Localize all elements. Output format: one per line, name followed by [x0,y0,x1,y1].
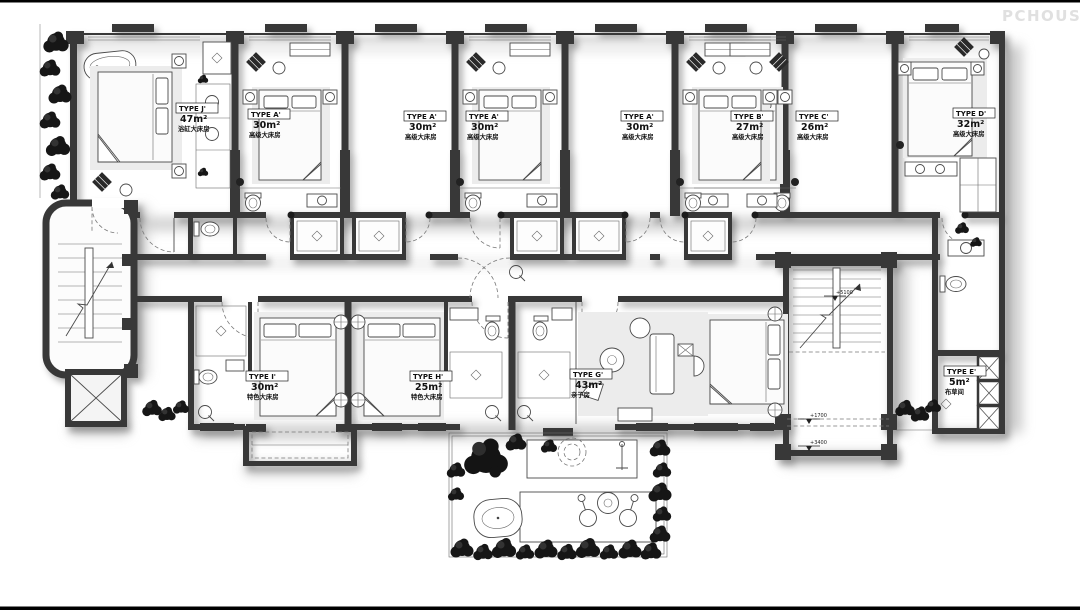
service-strip [940,218,1000,430]
svg-text:TYPE E': TYPE E' [947,368,976,376]
svg-text:TYPE A': TYPE A' [407,113,437,121]
svg-text:TYPE B': TYPE B' [734,113,764,121]
room-type-label: TYPE J' [179,105,206,113]
svg-text:高级大床房: 高级大床房 [467,132,498,141]
room-area-label: 47m² [180,114,207,125]
bed-icon [364,318,440,416]
bed-icon [260,318,336,416]
bed-icon [98,72,172,162]
svg-text:高级大床房: 高级大床房 [732,132,763,141]
svg-text:TYPE A': TYPE A' [251,111,281,119]
level-marker-mid: +1700 [810,413,827,419]
outdoor-bathtub-icon [472,497,523,539]
svg-text:高级大床房: 高级大床房 [953,129,984,138]
room-label-h: TYPE H' 25m² 特色大床房 [410,371,452,401]
room-label-c: TYPE C' 26m² 高级大床房 [796,111,838,141]
room-a1 [236,37,341,211]
level-marker-upper: +5100 [836,290,853,296]
svg-text:亲子房: 亲子房 [571,390,590,399]
nightstand-icon [971,62,984,75]
svg-text:特色大床房: 特色大床房 [411,392,442,401]
planting-left-bottom [142,400,189,421]
toilet-icon [194,370,217,384]
room-h [351,302,502,420]
svg-text:TYPE A': TYPE A' [624,113,654,121]
pouf-icon [630,318,650,338]
svg-text:26m²: 26m² [801,122,828,133]
room-label-d: TYPE D' 32m² 高级大床房 [953,108,995,138]
svg-text:TYPE H': TYPE H' [413,373,443,381]
room-name-label: 浴缸大床房 [178,124,209,133]
floor-plan-page: TYPE J' 47m² 浴缸大床房 TYPE A' 30m² 高级大床房 TY… [0,0,1080,610]
nightstand-icon [172,164,186,178]
room-g [518,302,788,424]
svg-text:TYPE C': TYPE C' [799,113,828,121]
crib-icon [678,344,693,356]
nightstand-icon [898,62,911,75]
patio-table-icon [598,493,619,514]
svg-text:43m²: 43m² [575,380,602,391]
courtyard [447,433,672,560]
svg-text:高级大床房: 高级大床房 [405,132,436,141]
lounge-chair-icon [92,172,112,192]
frame-top [0,0,1080,3]
svg-text:TYPE I': TYPE I' [249,373,276,381]
svg-text:30m²: 30m² [251,382,278,393]
room-label-a2: TYPE A' 30m² 高级大床房 [404,111,446,141]
planting-left-edge [40,24,72,200]
round-table-icon [600,348,624,372]
toilet-icon [194,222,219,236]
toilet-icon [533,316,548,340]
sofa-icon [650,334,674,394]
level-marker-low: +3400 [810,440,827,446]
svg-text:30m²: 30m² [253,120,280,131]
svg-text:特色大床房: 特色大床房 [247,392,278,401]
svg-text:27m²: 27m² [736,122,763,133]
closet-icon [203,42,231,74]
svg-text:5m²: 5m² [949,377,970,388]
svg-text:高级大床房: 高级大床房 [797,132,828,141]
svg-text:高级大床房: 高级大床房 [622,132,653,141]
frame-bottom [0,607,1080,610]
toilet-icon [485,316,500,340]
svg-text:30m²: 30m² [409,122,436,133]
room-b [676,37,781,211]
room-label-a4: TYPE A' 30m² 高级大床房 [621,111,663,141]
vanity-icon [905,162,957,176]
floor-plan-drawing: TYPE J' 47m² 浴缸大床房 TYPE A' 30m² 高级大床房 TY… [0,0,1080,610]
nightstand-icon [172,54,186,68]
svg-text:TYPE D': TYPE D' [956,110,986,118]
room-i [194,302,348,420]
svg-text:TYPE A': TYPE A' [469,113,499,121]
svg-text:30m²: 30m² [471,122,498,133]
svg-text:30m²: 30m² [626,122,653,133]
svg-text:布草间: 布草间 [945,387,964,396]
watermark: PCHOUSE [1002,7,1080,25]
svg-text:高级大床房: 高级大床房 [249,130,280,139]
wardrobe-icon [960,158,996,212]
bed-icon [710,320,784,404]
svg-text:25m²: 25m² [415,382,442,393]
svg-text:TYPE G': TYPE G' [573,371,603,379]
svg-text:32m²: 32m² [957,119,984,130]
toilet-icon [940,276,966,292]
